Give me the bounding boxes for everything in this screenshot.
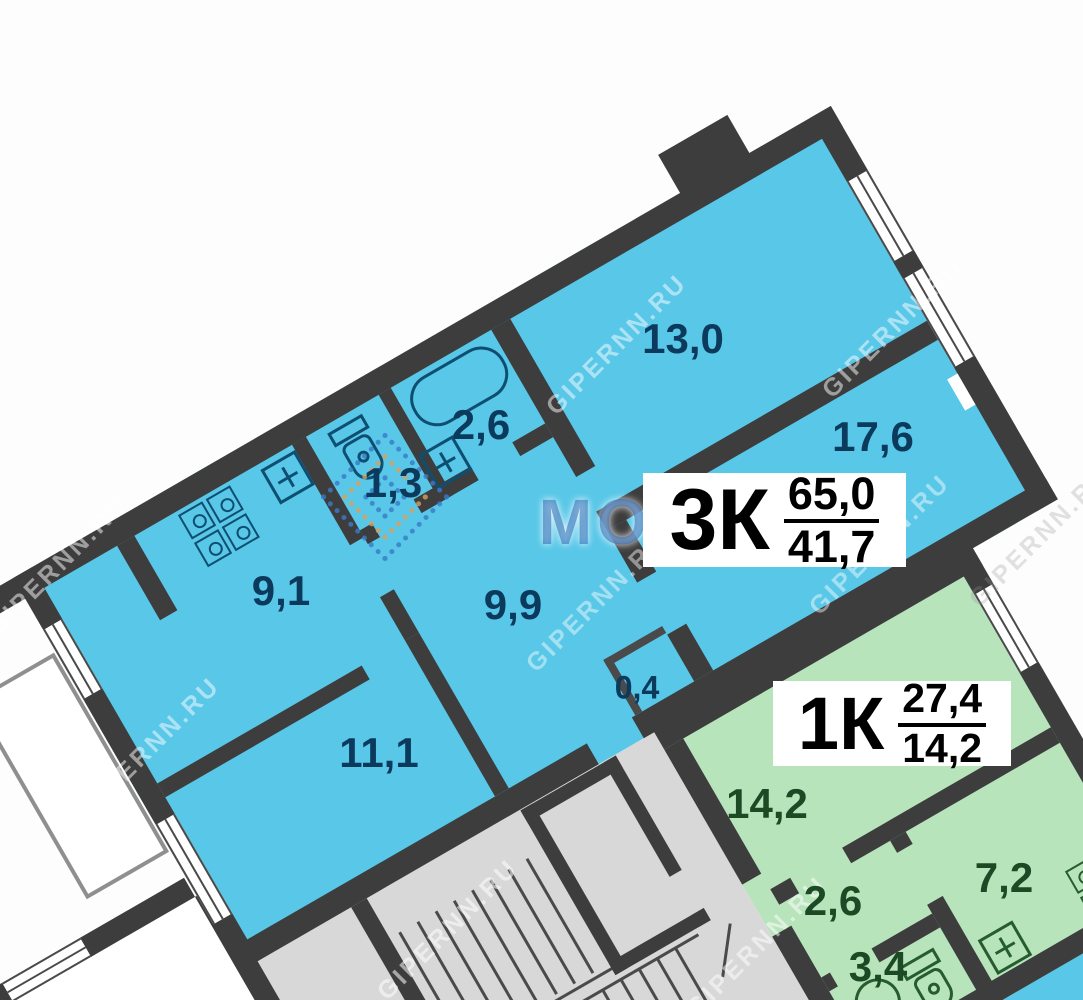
apartment-3k-type: 3К [670, 477, 770, 563]
room-label-1-3: 1,3 [364, 459, 422, 507]
room-label-3-4: 3,4 [849, 943, 907, 991]
apartment-1k-living-area: 14,2 [902, 727, 982, 770]
apartment-1k-total-area: 27,4 [898, 677, 986, 726]
room-label-7-2: 7,2 [975, 854, 1033, 902]
room-label-0-4: 0,4 [615, 670, 659, 707]
room-label-9-9: 9,9 [484, 581, 542, 629]
room-label-2-6: 2,6 [452, 401, 510, 449]
room-label-14-2: 14,2 [726, 780, 808, 828]
room-label-2-6-green: 2,6 [804, 877, 862, 925]
room-label-9-1: 9,1 [252, 567, 310, 615]
apartment-3k-total-area: 65,0 [784, 470, 880, 523]
apartment-1k-type: 1К [798, 687, 884, 761]
apartment-1k-info-box: 1К 27,4 14,2 [773, 681, 1011, 766]
apartment-3k-info-box: 3К 65,0 41,7 [643, 473, 906, 567]
room-label-13-0: 13,0 [642, 315, 724, 363]
apartment-3k-living-area: 41,7 [788, 523, 876, 570]
room-label-11-1: 11,1 [339, 729, 418, 777]
floorplan-image: МОНОЛИТ GIPERNN.RU GIPERNN.RU GIPERNN.RU… [0, 0, 1083, 1000]
room-label-17-6: 17,6 [832, 413, 914, 461]
